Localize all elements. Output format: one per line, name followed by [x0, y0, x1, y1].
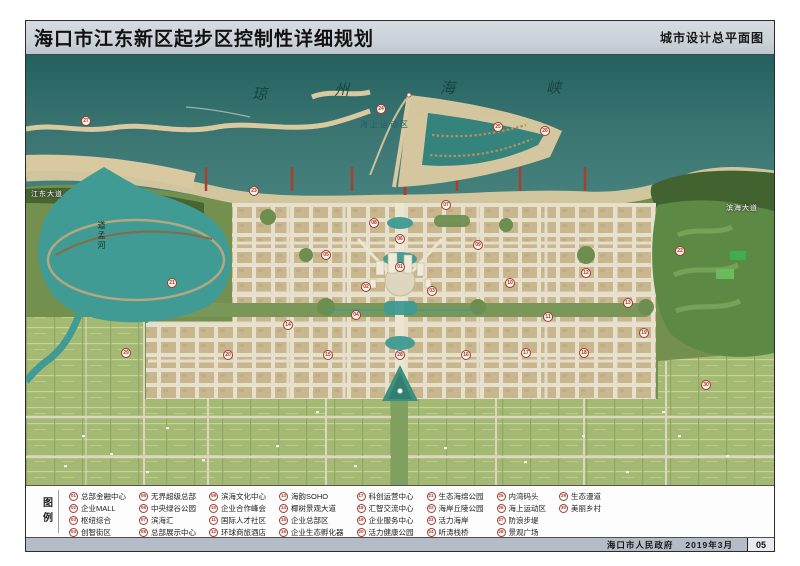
map-marker: 22: [675, 246, 685, 256]
map-marker-number: 23: [251, 189, 257, 194]
legend-item-number: 10: [209, 504, 218, 513]
map-marker-number: 28: [397, 353, 403, 358]
legend-item-number: 14: [279, 504, 288, 513]
legend-item: 17 科创运营中心: [357, 491, 414, 502]
legend-item-number: 22: [427, 504, 436, 513]
legend-item-label: 国际人才社区: [221, 515, 266, 526]
legend-item-label: 防浪步堤: [509, 515, 539, 526]
legend-item-label: 美丽乡村: [571, 503, 601, 514]
map-marker-number: 15: [325, 353, 331, 358]
legend: 图例 01 总部金融中心 02 企业MALL 03 枢纽综合 04 创智街区 0…: [26, 485, 774, 537]
map-marker-number: 24: [378, 107, 384, 112]
map-marker-number: 16: [463, 353, 469, 358]
sheet-footer: 海口市人民政府 2019年3月 05: [26, 537, 774, 551]
map-marker-number: 07: [443, 203, 449, 208]
map-marker-number: 04: [353, 313, 359, 318]
legend-item-number: 26: [497, 504, 506, 513]
legend-item: 10 企业合作峰会: [209, 503, 266, 514]
legend-item-number: 06: [139, 504, 148, 513]
map-marker-number: 25: [495, 125, 501, 130]
legend-item-label: 活力海岸: [439, 515, 469, 526]
legend-item: 19 企业服务中心: [357, 515, 414, 526]
map-marker: 21: [167, 278, 177, 288]
legend-item: 29 生态漫道: [559, 491, 601, 502]
sheet-frame: 海口市江东新区起步区控制性详细规划 城市设计总平面图: [25, 20, 775, 552]
map-marker: 18: [579, 348, 589, 358]
legend-item-label: 科创运营中心: [369, 491, 414, 502]
map-marker-number: 05: [323, 253, 329, 258]
legend-item-number: 09: [209, 492, 218, 501]
map-marker: 14: [283, 320, 293, 330]
map-marker-number: 26: [542, 129, 548, 134]
legend-item: 27 防浪步堤: [497, 515, 547, 526]
map-marker-number: 29: [123, 351, 129, 356]
legend-item-label: 企业合作峰会: [221, 503, 266, 514]
legend-item: 25 内湾码头: [497, 491, 547, 502]
legend-item-number: 05: [139, 492, 148, 501]
legend-item-label: 海韵SOHO: [291, 491, 328, 502]
legend-item-label: 滨海汇: [151, 515, 174, 526]
legend-item-number: 13: [279, 492, 288, 501]
map-label: 道孟河: [96, 221, 107, 251]
legend-item: 13 海韵SOHO: [279, 491, 344, 502]
legend-item-number: 16: [279, 528, 288, 537]
map-marker-number: 01: [397, 265, 403, 270]
legend-item-number: 25: [497, 492, 506, 501]
map-marker-number: 18: [581, 351, 587, 356]
map-marker-number: 03: [429, 289, 435, 294]
map-marker: 16: [461, 350, 471, 360]
map-marker-number: 06: [397, 237, 403, 242]
map-marker: 20: [223, 350, 233, 360]
legend-item: 15 企业总部区: [279, 515, 344, 526]
legend-item-label: 企业总部区: [291, 515, 329, 526]
map-marker: 12: [581, 268, 591, 278]
legend-item: 06 中央绿谷公园: [139, 503, 196, 514]
map-marker: 27: [81, 116, 91, 126]
map-marker-number: 30: [703, 383, 709, 388]
legend-item: 23 活力海岸: [427, 515, 484, 526]
legend-item-label: 内湾码头: [509, 491, 539, 502]
map-marker: 11: [543, 312, 553, 322]
page-title: 海口市江东新区起步区控制性详细规划: [34, 24, 374, 51]
legend-item-number: 18: [357, 504, 366, 513]
legend-item-number: 04: [69, 528, 78, 537]
map-marker-number: 09: [475, 243, 481, 248]
legend-item: 09 滨海文化中心: [209, 491, 266, 502]
master-plan-map: 琼州海峡海上运动区道孟河江东大道滨海大道27242526230807060102…: [26, 55, 774, 485]
sea-name-character: 琼: [252, 83, 267, 104]
map-marker: 09: [473, 240, 483, 250]
sea-name-character: 峡: [546, 77, 561, 98]
map-marker: 01: [395, 262, 405, 272]
legend-item-number: 23: [427, 516, 436, 525]
legend-item-number: 20: [357, 528, 366, 537]
map-marker: 23: [249, 186, 259, 196]
legend-item: 07 滨海汇: [139, 515, 196, 526]
legend-item-number: 08: [139, 528, 148, 537]
map-marker-number: 20: [225, 353, 231, 358]
legend-item-label: 中央绿谷公园: [151, 503, 196, 514]
legend-item-number: 15: [279, 516, 288, 525]
map-marker-number: 02: [363, 285, 369, 290]
legend-item: 21 生态海绵公园: [427, 491, 484, 502]
map-marker-number: 14: [285, 323, 291, 328]
map-marker: 05: [321, 250, 331, 260]
map-marker-number: 22: [677, 249, 683, 254]
map-marker-number: 21: [169, 281, 175, 286]
legend-item: 26 海上运动区: [497, 503, 547, 514]
map-marker: 26: [540, 126, 550, 136]
legend-item-label: 企业MALL: [81, 503, 116, 514]
map-marker: 25: [493, 122, 503, 132]
map-marker: 08: [369, 218, 379, 228]
map-marker: 07: [441, 200, 451, 210]
legend-item-number: 01: [69, 492, 78, 501]
map-marker: 13: [623, 298, 633, 308]
map-label: 江东大道: [31, 189, 63, 199]
map-marker: 29: [121, 348, 131, 358]
plan-sheet: 海口市江东新区起步区控制性详细规划 城市设计总平面图: [0, 0, 800, 566]
map-label: 海上运动区: [360, 119, 410, 130]
map-marker-number: 10: [507, 281, 513, 286]
legend-item: 02 企业MALL: [69, 503, 126, 514]
legend-item: 01 总部金融中心: [69, 491, 126, 502]
legend-item: 22 海岸丘陵公园: [427, 503, 484, 514]
legend-items: 01 总部金融中心 02 企业MALL 03 枢纽综合 04 创智街区 05 无…: [69, 490, 766, 533]
map-marker: 15: [323, 350, 333, 360]
map-marker-number: 12: [583, 271, 589, 276]
legend-item-label: 枢纽综合: [81, 515, 111, 526]
map-marker: 10: [505, 278, 515, 288]
map-marker: 19: [639, 328, 649, 338]
legend-item-number: 24: [427, 528, 436, 537]
date: 2019年3月: [685, 539, 733, 551]
map-marker: 17: [521, 348, 531, 358]
legend-item-label: 海上运动区: [509, 503, 547, 514]
legend-item: 18 汇智交流中心: [357, 503, 414, 514]
legend-item-number: 27: [497, 516, 506, 525]
sheet-header: 海口市江东新区起步区控制性详细规划 城市设计总平面图: [26, 21, 774, 55]
legend-item-number: 28: [497, 528, 506, 537]
legend-item-label: 汇智交流中心: [369, 503, 414, 514]
legend-item: 03 枢纽综合: [69, 515, 126, 526]
legend-item-label: 滨海文化中心: [221, 491, 266, 502]
legend-item-label: 生态海绵公园: [439, 491, 484, 502]
map-marker-number: 13: [625, 301, 631, 306]
sea-name-character: 海: [440, 77, 455, 98]
map-marker: 30: [701, 380, 711, 390]
map-label: 滨海大道: [726, 203, 758, 213]
legend-item-number: 03: [69, 516, 78, 525]
legend-item-number: 19: [357, 516, 366, 525]
sea-name-character: 州: [334, 79, 349, 100]
legend-title: 图例: [34, 490, 59, 533]
legend-item-number: 21: [427, 492, 436, 501]
legend-item-number: 12: [209, 528, 218, 537]
legend-item-label: 无界超级总部: [151, 491, 196, 502]
legend-item-number: 07: [139, 516, 148, 525]
map-marker: 03: [427, 286, 437, 296]
legend-item-number: 17: [357, 492, 366, 501]
map-marker: 04: [351, 310, 361, 320]
legend-item-number: 29: [559, 492, 568, 501]
legend-item-label: 生态漫道: [571, 491, 601, 502]
legend-item: 14 椰树景观大道: [279, 503, 344, 514]
map-marker-number: 27: [83, 119, 89, 124]
page-number: 05: [747, 538, 774, 551]
legend-item-label: 海岸丘陵公园: [439, 503, 484, 514]
legend-item-number: 11: [209, 516, 218, 525]
map-marker: 02: [361, 282, 371, 292]
map-marker: 24: [376, 104, 386, 114]
issuer: 海口市人民政府: [607, 539, 674, 551]
map-marker-number: 11: [545, 315, 550, 320]
map-marker-number: 08: [371, 221, 377, 226]
legend-item-label: 椰树景观大道: [291, 503, 336, 514]
legend-item-number: 02: [69, 504, 78, 513]
legend-item-number: 30: [559, 504, 568, 513]
map-annotations: 琼州海峡海上运动区道孟河江东大道滨海大道27242526230807060102…: [26, 55, 774, 485]
legend-item-label: 总部金融中心: [81, 491, 126, 502]
legend-item: 30 美丽乡村: [559, 503, 601, 514]
map-marker-number: 17: [523, 351, 529, 356]
map-marker: 28: [395, 350, 405, 360]
legend-item-label: 企业服务中心: [369, 515, 414, 526]
legend-item: 11 国际人才社区: [209, 515, 266, 526]
legend-item: 05 无界超级总部: [139, 491, 196, 502]
map-marker: 06: [395, 234, 405, 244]
map-marker-number: 19: [641, 331, 647, 336]
drawing-name: 城市设计总平面图: [660, 29, 764, 46]
